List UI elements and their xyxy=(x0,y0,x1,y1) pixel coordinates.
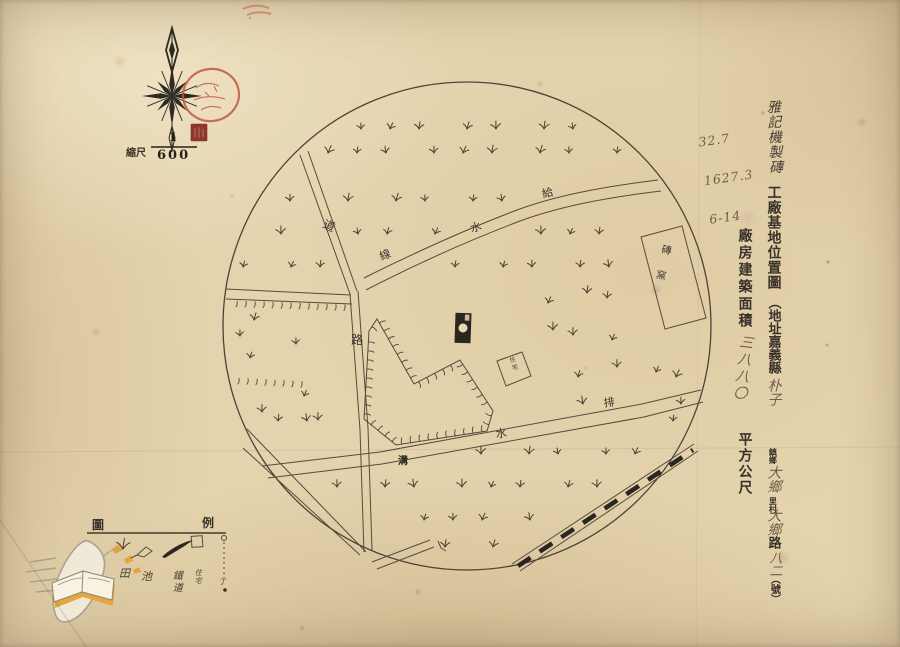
legend-railway-stroke xyxy=(162,540,193,558)
legend-label-railway: 鐵道 xyxy=(170,570,180,594)
legend-house-square xyxy=(191,536,203,548)
scanned-map-sheet: 縮尺 1 600 32.7 1627.3 6-14 雅記機製磚 工廠基地位置圖 … xyxy=(0,0,900,647)
drain-channel xyxy=(262,390,703,478)
legend-label-pond: 池 xyxy=(141,571,152,582)
archive-watermark-logo xyxy=(26,541,141,622)
legend-label-house: 住宅 xyxy=(194,569,201,585)
title-address-town: 朴子 xyxy=(766,378,781,406)
building-symbol xyxy=(454,313,471,344)
map-label-water-1: 給 xyxy=(541,186,554,200)
legend-title-right: 例 xyxy=(202,517,214,529)
road-lines xyxy=(300,151,372,552)
railway-line xyxy=(512,444,698,571)
map-label-drain-2: 水 xyxy=(495,427,507,440)
area-unit: 平方公尺 xyxy=(737,432,752,496)
red-seal-square xyxy=(191,124,207,141)
legend-label-pole: 丁 xyxy=(219,579,226,586)
area-label: 廠房建築面積 xyxy=(737,228,752,330)
map-drawing xyxy=(0,0,900,647)
title-unit-town: 鎮鄉 xyxy=(769,448,777,464)
map-label-road-main: 路 xyxy=(351,334,363,346)
paper-creases xyxy=(0,0,900,647)
title-company-name: 雅記機製磚 xyxy=(765,99,782,174)
map-label-drain-3: 溝 xyxy=(398,457,408,467)
title-number-suffix: （號） xyxy=(768,574,778,604)
scale-denominator: 600 xyxy=(157,149,190,163)
pencil-note-2: 1627.3 xyxy=(703,167,754,187)
legend-label-paddy: 田 xyxy=(119,568,130,579)
pencil-note-3: 6-14 xyxy=(708,206,759,226)
legend-title-left: 圖 xyxy=(92,519,104,531)
scale-label: 縮尺 xyxy=(126,149,146,159)
map-label-drain-1: 排 xyxy=(603,396,615,409)
title-address-prefix: （地址嘉義縣 xyxy=(766,296,780,374)
red-pencil-smudge xyxy=(243,6,271,19)
scale-numerator: 1 xyxy=(169,131,178,143)
title-address-li: 大鄉 xyxy=(766,465,781,493)
title-road-char: 路 xyxy=(766,536,780,550)
title-address-road: 大鄉 xyxy=(766,508,781,536)
title-main: 工廠基地位置圖 xyxy=(766,185,781,290)
pencil-note-1: 32.7 xyxy=(698,129,749,149)
